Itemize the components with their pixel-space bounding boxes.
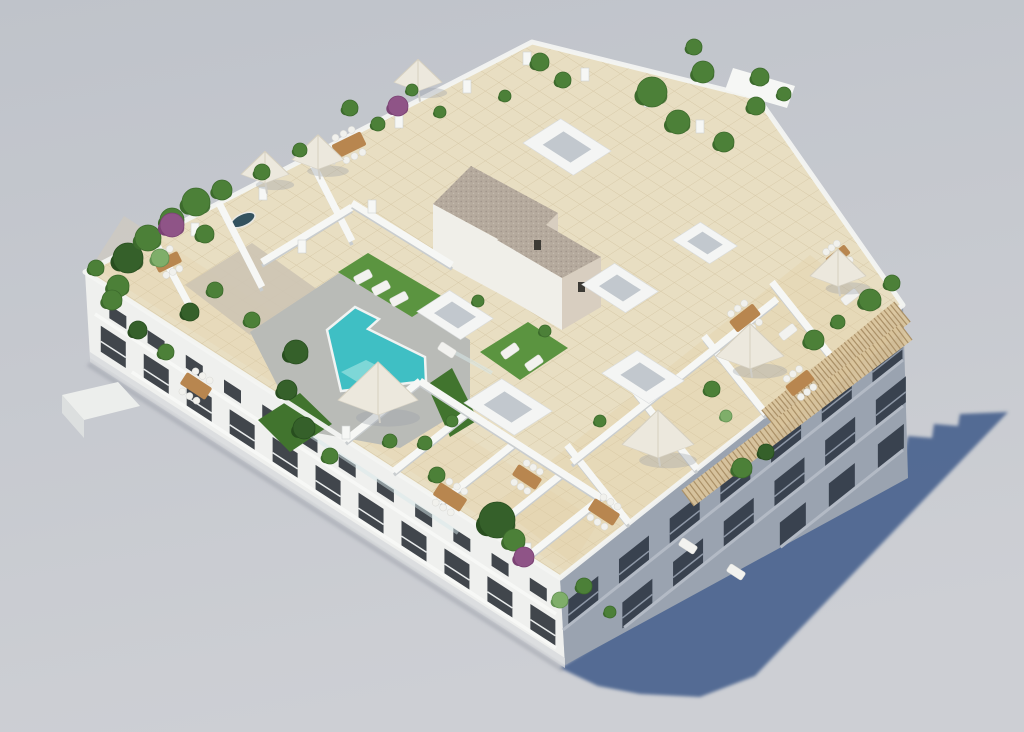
plant-foliage: [859, 289, 881, 311]
plant-foliage: [732, 458, 752, 478]
plant-foliage: [342, 100, 358, 116]
plant-foliage: [637, 77, 667, 107]
plant-foliage: [151, 249, 169, 267]
plant-foliage: [371, 117, 385, 131]
plant-foliage: [129, 321, 147, 339]
parapet-pillar: [696, 120, 704, 133]
plant-foliage: [322, 448, 338, 464]
parapet-pillar: [581, 68, 589, 81]
parapet-pillar: [395, 115, 403, 128]
rendered-image: [0, 0, 1024, 732]
plant-foliage: [182, 188, 210, 216]
plant-foliage: [704, 381, 720, 397]
parapet-pillar: [298, 240, 306, 253]
plant-foliage: [514, 547, 534, 567]
plant-foliage: [604, 606, 616, 618]
plant-foliage: [207, 282, 223, 298]
plant-foliage: [88, 260, 104, 276]
plant-foliage: [758, 444, 774, 460]
plant-foliage: [158, 344, 174, 360]
plant-foliage: [751, 68, 769, 86]
plant-foliage: [714, 132, 734, 152]
plant-foliage: [254, 164, 270, 180]
plant-foliage: [446, 415, 458, 427]
plant-foliage: [388, 96, 408, 116]
plant-foliage: [666, 110, 690, 134]
parasol-shadow: [733, 364, 787, 379]
plant-foliage: [804, 330, 824, 350]
plant-foliage: [539, 325, 551, 337]
plant-foliage: [692, 61, 714, 83]
plant-foliage: [552, 592, 568, 608]
plant-foliage: [686, 39, 702, 55]
plant-foliage: [472, 295, 484, 307]
plant-foliage: [594, 415, 606, 427]
parasol-shadow: [356, 409, 420, 427]
plant-foliage: [102, 290, 122, 310]
plant-foliage: [135, 225, 161, 251]
parapet-pillar: [342, 426, 350, 439]
plant-foliage: [293, 417, 315, 439]
plant-foliage: [383, 434, 397, 448]
plant-foliage: [212, 180, 232, 200]
plant-foliage: [277, 380, 297, 400]
aerial-render-canvas: [0, 0, 1024, 732]
plant-foliage: [499, 90, 511, 102]
plant-foliage: [429, 467, 445, 483]
plant-foliage: [406, 84, 418, 96]
plant-foliage: [160, 213, 184, 237]
plant-foliage: [181, 303, 199, 321]
plant-foliage: [555, 72, 571, 88]
parasol-shadow: [639, 452, 697, 468]
plant-foliage: [196, 225, 214, 243]
plant-foliage: [293, 143, 307, 157]
plant-foliage: [576, 578, 592, 594]
stair-window-1: [534, 240, 541, 250]
plant-foliage: [418, 436, 432, 450]
plant-foliage: [244, 312, 260, 328]
plant-foliage: [434, 106, 446, 118]
plant-foliage: [777, 87, 791, 101]
plant-foliage: [720, 410, 732, 422]
plant-foliage: [831, 315, 845, 329]
parapet-pillar: [463, 80, 471, 93]
plant-foliage: [884, 275, 900, 291]
plant-foliage: [747, 97, 765, 115]
plant-foliage: [284, 340, 308, 364]
parapet-pillar: [368, 200, 376, 213]
plant-foliage: [531, 53, 549, 71]
